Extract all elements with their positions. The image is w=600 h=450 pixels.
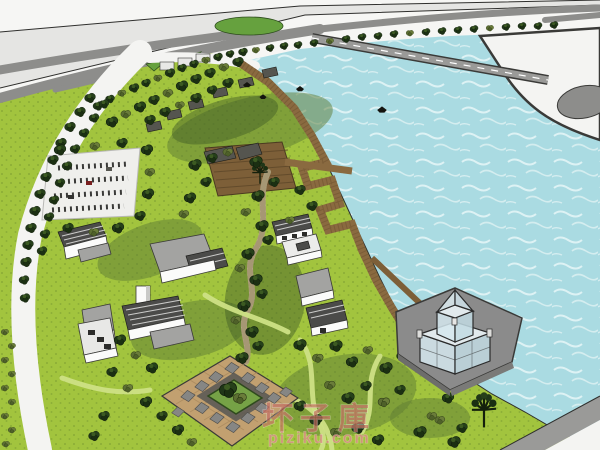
watermark-domain: piziku.com <box>268 430 371 447</box>
parked-car-red <box>86 181 92 185</box>
watermark: 坏子庫 piziku.com <box>262 401 376 447</box>
parked-car-dark <box>68 195 74 199</box>
screenshot-stage: 坏子庫 piziku.com <box>0 0 600 450</box>
parked-car-gray <box>106 167 112 171</box>
grass-oval <box>215 17 283 35</box>
site-plan-render: 坏子庫 piziku.com <box>0 0 600 450</box>
